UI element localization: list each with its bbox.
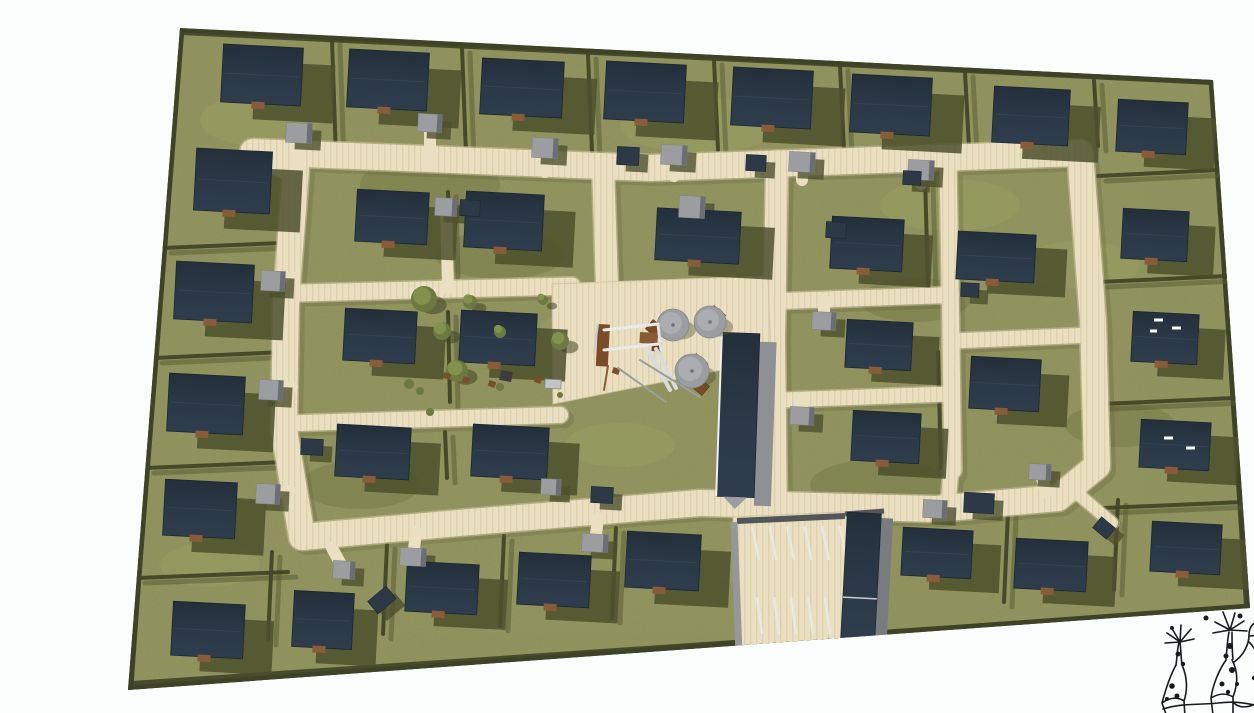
house <box>193 148 272 219</box>
garage-side <box>603 534 609 552</box>
house <box>1013 538 1088 597</box>
house <box>1130 311 1199 369</box>
garage-side <box>681 145 687 165</box>
entry-step <box>362 475 375 483</box>
logo-dot <box>1181 662 1185 666</box>
tree-highlight <box>413 287 431 305</box>
street <box>948 468 951 507</box>
logo-dot <box>1170 626 1174 630</box>
garage <box>400 547 427 566</box>
garage <box>285 122 312 143</box>
logo-dot <box>1227 643 1233 649</box>
logo-dot <box>1226 690 1230 694</box>
garage <box>660 144 687 165</box>
garage-side <box>831 312 837 330</box>
garage <box>790 406 815 425</box>
house <box>404 561 479 620</box>
garage <box>531 137 558 158</box>
garage <box>678 195 705 218</box>
hedge-shadow <box>453 437 455 483</box>
shed-roof <box>460 199 481 216</box>
shrub <box>496 383 504 391</box>
garage-side <box>306 123 312 143</box>
hedge-shadow <box>933 180 936 293</box>
entry-step <box>493 246 506 254</box>
entry-step <box>652 586 665 594</box>
entry-step <box>880 131 893 139</box>
tree-highlight <box>494 325 502 333</box>
garage-side <box>552 138 558 158</box>
street <box>603 166 607 286</box>
house <box>342 308 417 369</box>
shed <box>617 146 640 165</box>
house <box>901 527 974 584</box>
shrub <box>416 387 424 395</box>
entry-step <box>1154 360 1167 368</box>
house <box>1149 521 1222 580</box>
shrub <box>426 408 434 416</box>
parasol-pole <box>671 323 675 327</box>
shed <box>301 438 324 455</box>
garage-side <box>350 561 356 579</box>
shed <box>963 492 994 514</box>
entry-step <box>875 459 888 467</box>
entry-step <box>189 534 202 542</box>
shed-roof <box>963 492 994 514</box>
shed <box>826 221 847 238</box>
grass-patch <box>565 423 675 467</box>
street <box>300 286 572 293</box>
house <box>291 590 354 654</box>
long-building-roof <box>716 332 760 497</box>
entry-step <box>687 259 700 267</box>
garage <box>418 113 443 132</box>
entry-step <box>985 278 998 286</box>
street <box>300 415 560 423</box>
parasol-pole <box>708 320 712 324</box>
entry-step <box>856 267 869 275</box>
parasol-top <box>660 312 682 334</box>
entry-step <box>868 366 881 374</box>
street <box>774 162 777 505</box>
logo-dot <box>1235 682 1239 686</box>
parasol-top <box>678 357 702 381</box>
house <box>173 261 254 328</box>
house <box>1139 419 1212 476</box>
rendering-canvas <box>0 0 1254 713</box>
house <box>354 189 429 250</box>
entry-step <box>926 574 939 582</box>
shed-roof <box>826 221 847 238</box>
house <box>1115 99 1188 160</box>
logo-dot <box>1204 616 1209 621</box>
garage-side <box>279 271 285 291</box>
house <box>730 67 813 134</box>
entry-step <box>511 113 524 121</box>
long-building <box>716 332 777 510</box>
parked-car <box>545 379 561 389</box>
site-layer <box>128 28 1251 690</box>
entry-step <box>1040 587 1053 595</box>
shrub <box>557 392 563 398</box>
shrub <box>404 379 414 389</box>
house <box>170 601 245 664</box>
house <box>162 479 237 544</box>
playground-part <box>639 332 658 344</box>
house <box>334 424 411 485</box>
entry-step <box>369 359 382 367</box>
garage-side <box>556 479 562 495</box>
entry-step <box>377 106 390 114</box>
tree-highlight <box>434 322 446 334</box>
house <box>968 356 1041 417</box>
house <box>479 58 564 123</box>
entry-step <box>1164 466 1177 474</box>
garage <box>258 379 283 400</box>
garage-side <box>274 484 280 504</box>
entry-step <box>499 475 512 483</box>
shed-roof <box>617 146 640 165</box>
house <box>850 410 921 468</box>
garage <box>260 270 285 291</box>
parasol-pole <box>690 369 694 373</box>
logo-dot <box>1220 682 1225 687</box>
house <box>346 49 429 116</box>
house <box>991 86 1070 151</box>
tree-highlight <box>538 294 545 301</box>
house <box>220 44 303 111</box>
tree-shadow <box>547 303 558 310</box>
tree-highlight <box>552 332 564 344</box>
garage-side <box>277 380 283 400</box>
garage-side <box>942 500 948 518</box>
street <box>952 335 1092 341</box>
logo-dot <box>1169 683 1175 689</box>
entry-step <box>431 610 444 618</box>
shed <box>460 199 481 216</box>
entry-step <box>543 603 556 611</box>
street <box>782 295 950 301</box>
garage <box>255 483 280 504</box>
garage-side <box>1046 464 1052 480</box>
shed <box>903 171 922 186</box>
parasol-top <box>697 309 719 331</box>
shed-roof <box>746 154 767 171</box>
logo-dot <box>1229 667 1235 673</box>
garage-side <box>421 548 427 566</box>
entry-step <box>195 430 208 438</box>
entry-step <box>251 101 264 109</box>
entry-step <box>1141 150 1154 158</box>
entry-step <box>634 118 647 126</box>
house <box>458 310 537 371</box>
parking-building-roof <box>841 512 882 642</box>
garage <box>582 533 609 552</box>
garage <box>541 478 562 495</box>
garden-object <box>499 370 513 382</box>
logo-dot <box>1224 654 1229 659</box>
logo-dot <box>1238 614 1243 619</box>
entry-step <box>994 407 1007 415</box>
lot-hedge <box>445 432 447 478</box>
garage-side <box>809 152 815 172</box>
garage <box>788 151 815 172</box>
shed-roof <box>903 171 922 186</box>
shed <box>591 486 614 503</box>
house <box>516 552 591 613</box>
logo-dot <box>1165 697 1169 701</box>
garage-side <box>452 198 458 216</box>
entry-step <box>222 209 235 217</box>
house <box>1120 208 1189 266</box>
garage <box>923 499 948 518</box>
shed-roof <box>591 486 614 503</box>
entry-step <box>487 361 500 369</box>
shed-roof <box>961 283 980 298</box>
entry-step <box>761 124 774 132</box>
tree-highlight <box>448 361 463 376</box>
entry-step <box>197 654 210 662</box>
street <box>948 158 953 470</box>
garage-side <box>928 160 934 180</box>
site-plan-rendering <box>0 0 1254 713</box>
garage-side <box>809 407 815 425</box>
entry-step <box>1144 257 1157 265</box>
entry-step <box>381 240 394 248</box>
garage <box>333 560 356 579</box>
house <box>956 231 1037 288</box>
entry-step <box>1020 141 1033 149</box>
shed <box>746 154 767 171</box>
logo-dot <box>1176 652 1181 657</box>
entry-step <box>203 318 216 326</box>
house <box>845 319 914 375</box>
parking-building <box>840 512 893 646</box>
shed-roof <box>301 438 324 455</box>
house <box>624 531 701 596</box>
house <box>603 61 686 128</box>
house <box>166 373 245 440</box>
entry-step <box>1175 570 1188 578</box>
garage <box>812 311 837 330</box>
garage <box>435 197 458 216</box>
logo-dot <box>1175 694 1180 699</box>
tree-highlight <box>463 294 473 304</box>
garage <box>1029 463 1052 480</box>
house <box>470 424 549 485</box>
entry-step <box>312 645 325 653</box>
shed <box>961 283 980 298</box>
garage-side <box>437 114 443 132</box>
parking-wall <box>734 522 739 654</box>
house <box>849 74 932 141</box>
